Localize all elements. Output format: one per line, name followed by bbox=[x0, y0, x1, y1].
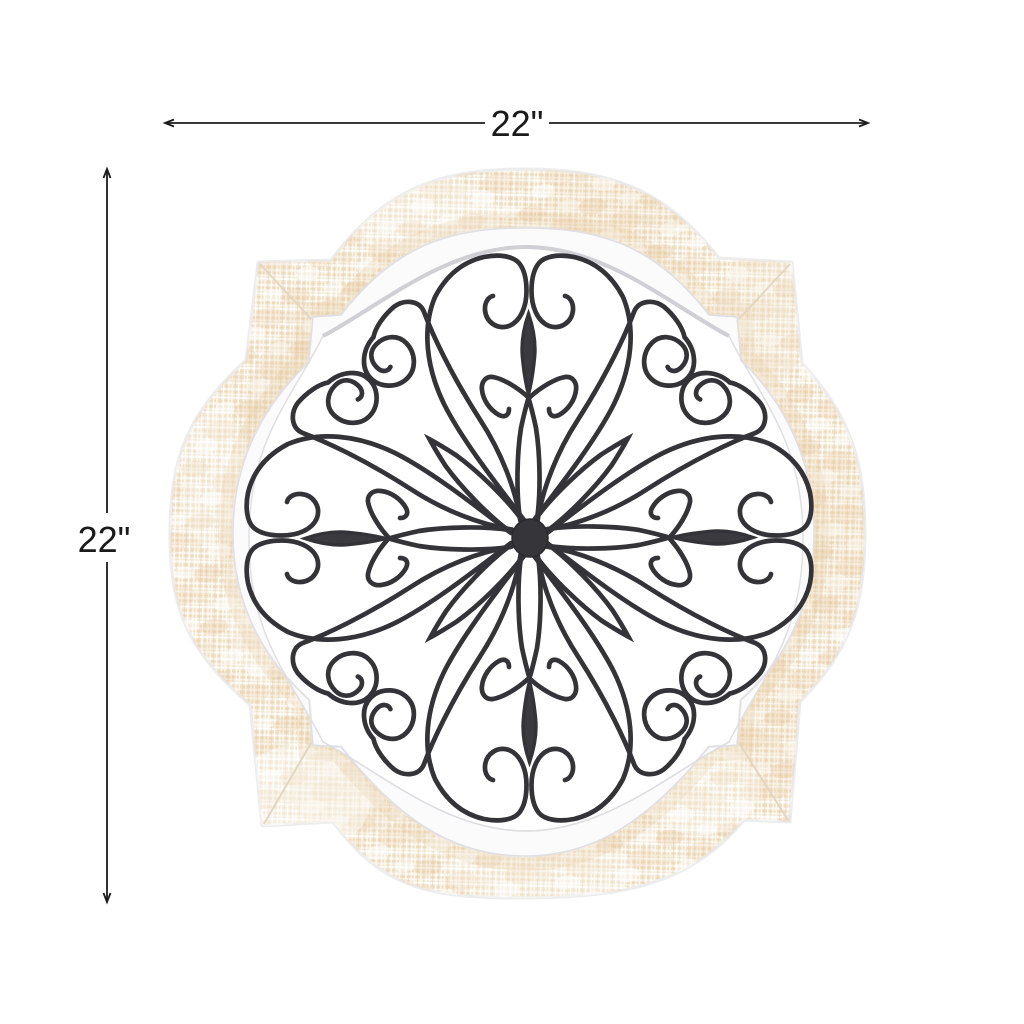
svg-text:22": 22" bbox=[78, 519, 131, 560]
svg-text:22": 22" bbox=[491, 103, 544, 144]
